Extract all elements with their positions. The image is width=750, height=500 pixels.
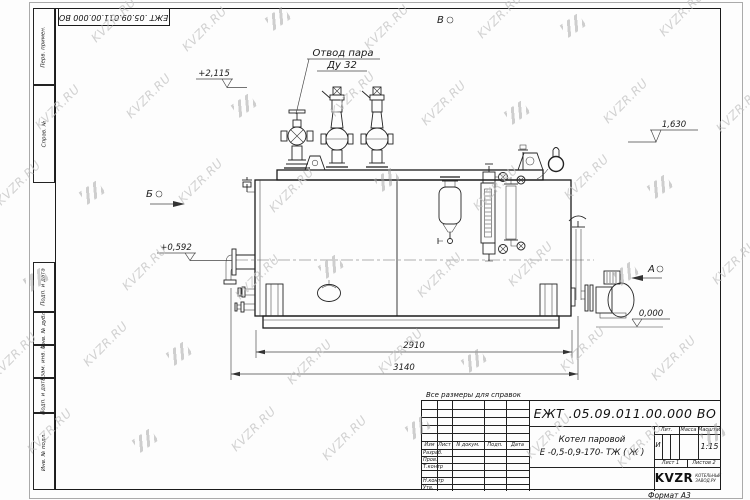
left-nozzle-lower [235, 302, 255, 312]
tb-col-ndoc: N докум. [452, 442, 484, 448]
support-skid [263, 284, 559, 328]
elevation-axis: +0,592 [157, 243, 232, 261]
lifting-lug-right [518, 145, 543, 170]
svg-text:Б: Б [146, 189, 153, 200]
svg-text:0,000: 0,000 [639, 309, 663, 319]
svg-text:3140: 3140 [393, 363, 415, 373]
elevation-ground: 0,000 [632, 309, 670, 327]
tb-col-izm: Изм [422, 442, 437, 448]
feedwater-elbow [224, 249, 255, 284]
left-top-valve [242, 177, 255, 192]
tb-product-name-line2: Е -0,5-0,9-170- ТЖ ( Ж ) [540, 447, 645, 460]
tb-product-name: Котел паровой Е -0,5-0,9-170- ТЖ ( Ж ) [529, 426, 655, 467]
safety-valve-left [321, 87, 353, 167]
elevation-valves-top: +2,115 [196, 69, 247, 88]
tb-sheets-cell: Листов 2 [687, 460, 721, 466]
manhole [318, 280, 341, 302]
svg-text:1,630: 1,630 [662, 120, 686, 130]
tb-sheet-cell: Лист 1 [654, 460, 687, 466]
drawing-sheet: Перв. примен. Справ. № Подп. и дата Инв.… [0, 0, 750, 500]
callout-line1: Отвод пара [313, 48, 374, 59]
tb-lit-label: Лит. [654, 427, 679, 433]
dimension-shell-length: 2910 [256, 330, 572, 358]
tb-row-nkontr: Н.контр [423, 478, 453, 484]
kvzr-logo-caption: КОТЕЛЬНЫЙ ЗАВОД.РУ [695, 473, 721, 483]
svg-text:В: В [437, 15, 444, 26]
elevation-shell-top: 1,630 [628, 120, 698, 142]
svg-text:+2,115: +2,115 [198, 69, 229, 79]
tb-row-prov: Пров. [423, 457, 453, 463]
tb-designation: ЕЖТ .05.09.011.00.000 ВО [529, 401, 721, 426]
gauge-glass-second [504, 176, 525, 250]
tb-col-podp: Подп. [484, 442, 506, 448]
tb-col-data: Дата [506, 442, 529, 448]
left-nozzle-upper [238, 287, 255, 297]
reference-note: Все размеры для справок [426, 391, 521, 399]
tb-logo-cell: KVZR КОТЕЛЬНЫЙ ЗАВОД.РУ [654, 467, 720, 489]
tb-row-tkontr: Т.контр [423, 464, 453, 470]
format-label: Формат А3 [648, 491, 691, 500]
tb-mass-label: Масса [679, 427, 698, 433]
tb-row-razrab: Разраб. [423, 450, 453, 456]
separator-vessel [438, 177, 461, 244]
steam-outlet-valve [281, 110, 313, 168]
view-marker-top: В [437, 15, 453, 26]
svg-text:2910: 2910 [403, 341, 425, 351]
svg-text:+0,592: +0,592 [160, 243, 191, 253]
tb-col-list: Лист [437, 442, 452, 448]
svg-text:А: А [647, 264, 655, 275]
callout-line2: Ду 32 [326, 60, 357, 71]
title-block: Изм Лист N докум. Подп. Дата Разраб. Про… [421, 400, 721, 490]
view-marker-right: А [631, 264, 663, 281]
kvzr-logo-word: KVZR [655, 471, 694, 485]
steam-outlet-callout: Отвод пара Ду 32 [296, 48, 380, 114]
water-gauge [481, 164, 508, 261]
safety-valve-right [361, 87, 393, 167]
tb-scale-label: Масштаб [698, 427, 721, 433]
tb-scale-value: 1:15 [698, 442, 721, 451]
tb-lit-value: И [654, 441, 662, 449]
view-marker-left: Б [146, 189, 185, 207]
tb-row-utv: Утв. [423, 485, 453, 491]
tb-product-name-line1: Котел паровой [559, 434, 626, 447]
